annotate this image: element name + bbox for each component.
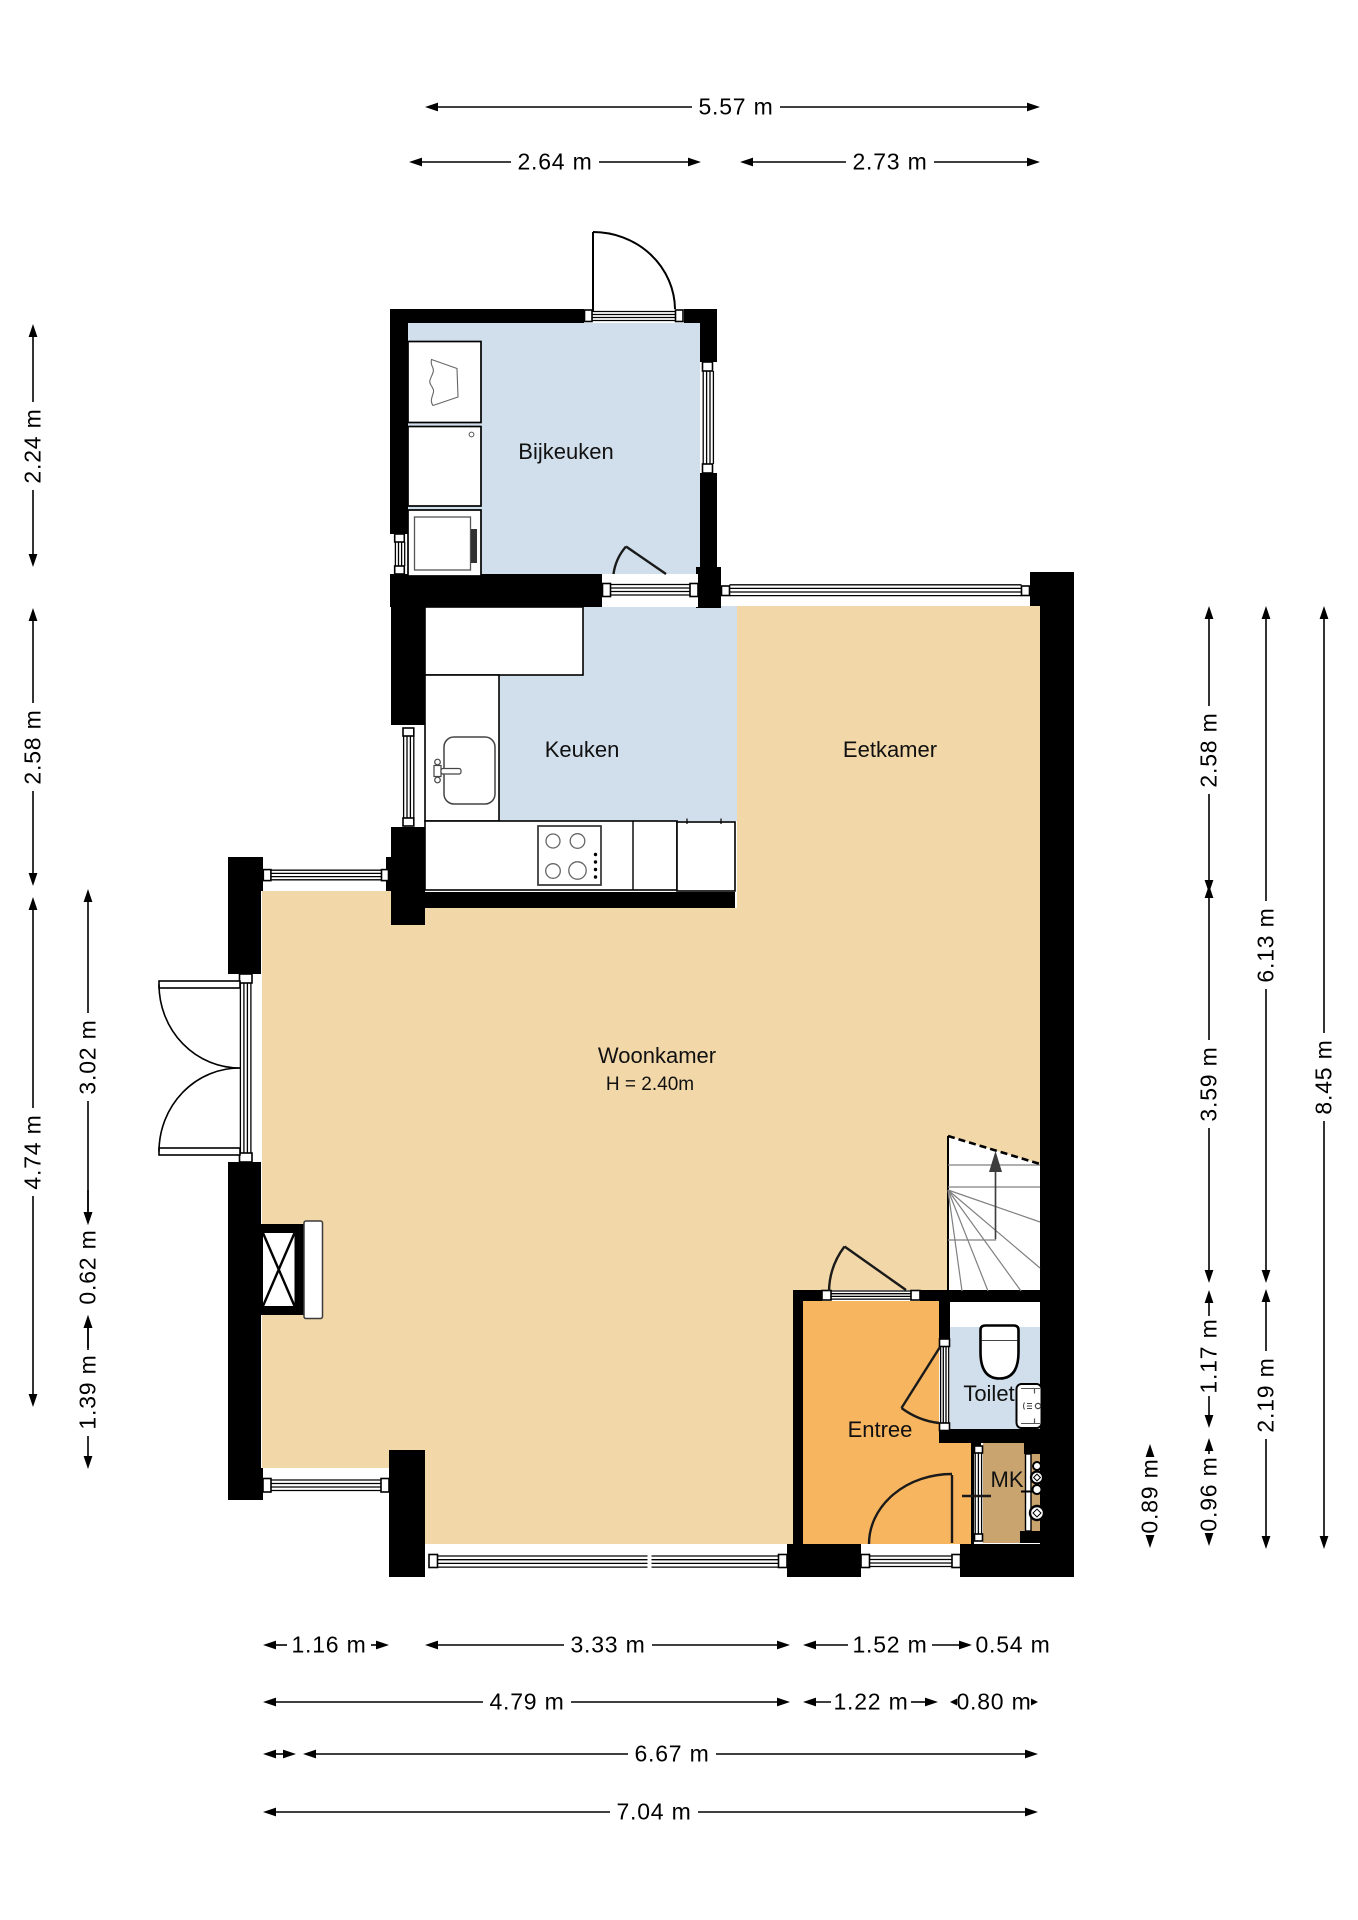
- svg-text:Woonkamer: Woonkamer: [598, 1043, 716, 1068]
- svg-text:Entree: Entree: [848, 1417, 913, 1442]
- svg-text:4.79 m: 4.79 m: [489, 1689, 564, 1715]
- svg-text:3.59 m: 3.59 m: [1196, 1046, 1222, 1121]
- svg-text:0.62 m: 0.62 m: [75, 1229, 101, 1304]
- svg-text:0.96 m: 0.96 m: [1196, 1456, 1222, 1531]
- svg-text:1.16 m: 1.16 m: [291, 1632, 366, 1658]
- svg-text:2.73 m: 2.73 m: [852, 149, 927, 175]
- svg-text:1.39 m: 1.39 m: [75, 1354, 101, 1429]
- svg-text:Toilet: Toilet: [963, 1381, 1014, 1406]
- svg-text:1.22 m: 1.22 m: [833, 1689, 908, 1715]
- svg-text:2.19 m: 2.19 m: [1253, 1357, 1279, 1432]
- svg-text:6.67 m: 6.67 m: [634, 1741, 709, 1767]
- svg-text:2.64 m: 2.64 m: [517, 149, 592, 175]
- svg-text:3.33 m: 3.33 m: [570, 1632, 645, 1658]
- svg-text:H = 2.40m: H = 2.40m: [606, 1074, 694, 1095]
- svg-text:2.58 m: 2.58 m: [20, 709, 46, 784]
- svg-text:Bijkeuken: Bijkeuken: [518, 439, 613, 464]
- svg-text:Keuken: Keuken: [545, 737, 620, 762]
- svg-text:3.02 m: 3.02 m: [75, 1019, 101, 1094]
- svg-text:2.24 m: 2.24 m: [20, 408, 46, 483]
- svg-text:7.04 m: 7.04 m: [616, 1799, 691, 1825]
- svg-text:0.54 m: 0.54 m: [975, 1632, 1050, 1658]
- svg-text:1.52 m: 1.52 m: [852, 1632, 927, 1658]
- svg-text:Eetkamer: Eetkamer: [843, 737, 937, 762]
- svg-text:0.80 m: 0.80 m: [956, 1689, 1031, 1715]
- svg-text:5.57 m: 5.57 m: [698, 94, 773, 120]
- svg-text:2.58 m: 2.58 m: [1196, 712, 1222, 787]
- svg-text:1.17 m: 1.17 m: [1196, 1318, 1222, 1393]
- svg-text:MK: MK: [991, 1467, 1024, 1492]
- svg-text:4.74 m: 4.74 m: [20, 1114, 46, 1189]
- svg-text:8.45 m: 8.45 m: [1311, 1039, 1337, 1114]
- svg-text:0.89 m: 0.89 m: [1137, 1458, 1163, 1533]
- svg-text:6.13 m: 6.13 m: [1253, 907, 1279, 982]
